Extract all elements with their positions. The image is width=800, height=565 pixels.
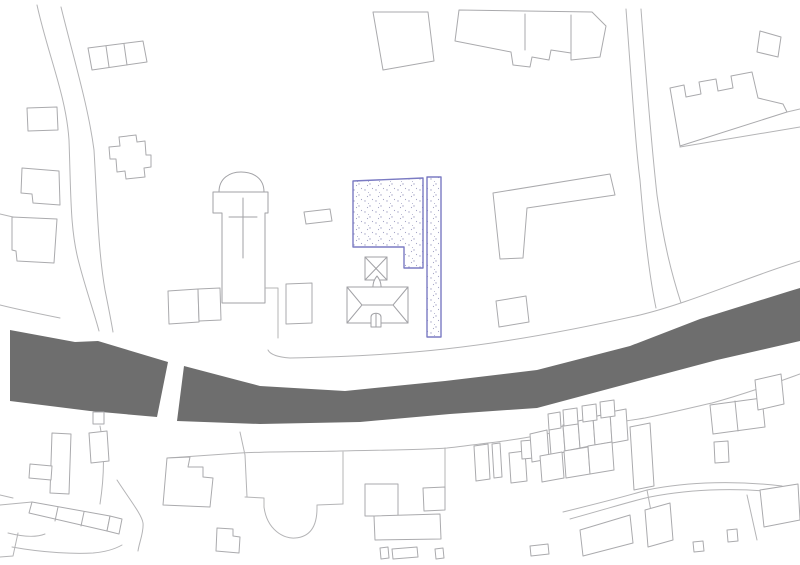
road-topright-east-edge [641, 9, 681, 303]
plot-rect-mid-3 [423, 487, 445, 511]
cluster-quad-7 [564, 447, 590, 478]
bottom-edge-rect-4 [530, 544, 549, 556]
building-rect-left [27, 107, 58, 131]
curve-bottomleft-1 [8, 533, 45, 536]
cluster-quad-8 [588, 442, 614, 474]
cluster-quad-9 [548, 412, 561, 430]
building-complex-top [455, 10, 606, 67]
building-cross-shape [109, 135, 151, 179]
building-nave-east [286, 283, 312, 324]
bottom-edge-rect-1 [380, 547, 389, 559]
rowstrip-endcap [107, 516, 122, 534]
line-crenellated-step [787, 109, 800, 112]
building-l-shape [493, 174, 615, 259]
building-notched-left [21, 168, 60, 205]
bottom-edge-rect-2 [392, 547, 418, 559]
building-tilted-bottomleft [89, 431, 109, 463]
building-tilted-square-topright [757, 31, 781, 57]
river-segment-west [10, 330, 168, 417]
building-nave-west-2 [198, 288, 221, 321]
street-rect-1 [474, 444, 490, 481]
cluster-quad-6 [540, 452, 564, 482]
building-crenellated [670, 72, 787, 146]
hook-bottomleft [0, 533, 18, 557]
below-road-quad-2 [645, 503, 673, 547]
road-topright-west-edge [626, 9, 656, 308]
site-plan-svg [0, 0, 800, 565]
cluster-quad-2 [563, 422, 580, 451]
building-tilted-small [304, 209, 332, 224]
riverside-rect-right-2 [755, 374, 784, 410]
building-cluster-notched [163, 457, 213, 507]
cluster-quad-12 [600, 400, 615, 418]
cluster-quad-10 [563, 408, 578, 426]
below-road-small-1 [727, 529, 738, 542]
scallop-plot-outline [245, 497, 343, 538]
bridge-house-square [93, 412, 104, 424]
bottom-edge-rect-3 [435, 548, 444, 559]
strip-left-extension [0, 502, 32, 505]
rowstrip-bottomleft [29, 502, 110, 531]
below-road-small-2 [693, 541, 704, 552]
cluster-quad-1 [549, 426, 565, 455]
street-rect-2 [492, 443, 502, 478]
road-curve-bottomleft [117, 480, 143, 551]
cluster-tall-block [630, 423, 654, 490]
road-bottomright-south [570, 490, 784, 519]
building-quad-left [12, 217, 57, 263]
line-bottomleft-edge [0, 495, 13, 498]
building-annex-bottomleft [29, 464, 52, 480]
plot-divider-1 [245, 455, 247, 497]
curve-bottomleft-2 [12, 545, 122, 553]
line-cluster-vertical-2 [747, 495, 757, 540]
church-outline [213, 192, 268, 303]
building-tilted-square-mid [496, 296, 529, 327]
plot-edge-small [240, 432, 245, 455]
rowhouses-top [88, 41, 147, 70]
below-road-quad-3 [760, 484, 800, 527]
bank-left-curve [0, 305, 60, 318]
church-apse-arc [219, 172, 264, 192]
cluster-quad-3 [578, 418, 595, 448]
road-bottomright-north [563, 483, 782, 512]
boundary-left-edge [0, 214, 13, 217]
site-plan-canvas [0, 0, 800, 565]
cluster-quad-11 [582, 404, 597, 422]
building-tall-bottomleft [50, 433, 71, 494]
plot-rect-mid-2 [374, 514, 441, 540]
building-quad-topcenter [373, 12, 434, 70]
square-right-mid [714, 441, 729, 463]
parcel-main-area [353, 178, 423, 268]
below-road-quad-1 [580, 515, 633, 556]
buildings [12, 10, 800, 559]
river-segment-east [177, 288, 800, 424]
building-small-l [216, 528, 240, 553]
parcel-strip [427, 177, 441, 337]
building-nave-west-1 [168, 289, 199, 324]
plot-rect-mid-1 [365, 484, 398, 516]
boundary-near-church [266, 288, 278, 338]
